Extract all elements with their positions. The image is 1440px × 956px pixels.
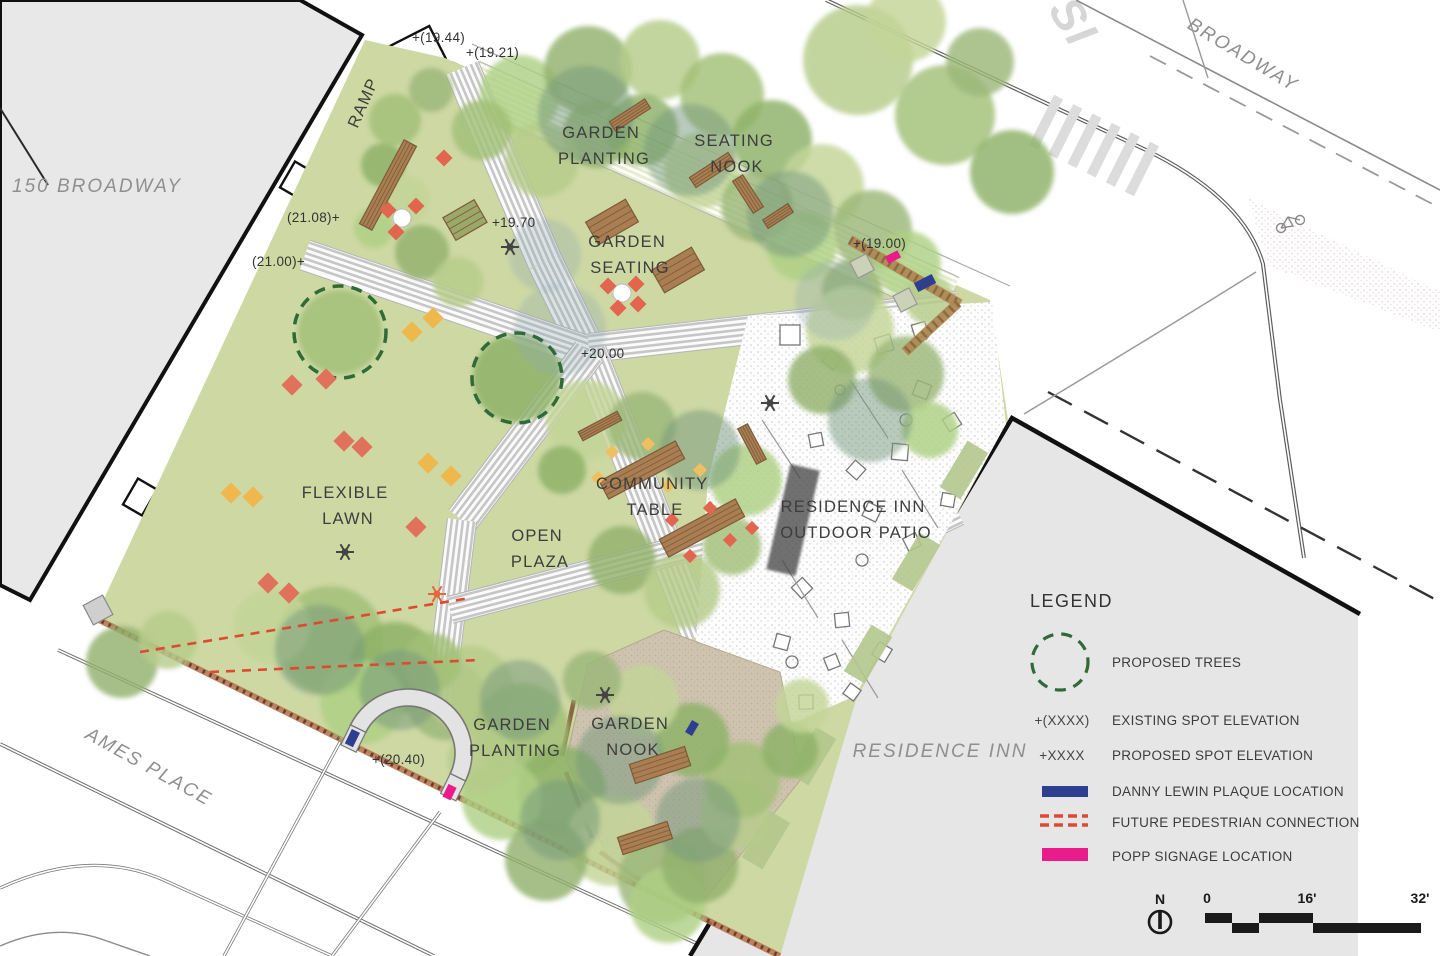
label-outdoor-patio: RESIDENCE INN [781, 498, 926, 516]
tree-blob [775, 679, 829, 733]
legend-plaque-label: DANNY LEWIN PLAQUE LOCATION [1112, 784, 1344, 799]
tree-blob [644, 552, 720, 628]
scale-end: 32' [1411, 890, 1430, 906]
label-garden-seating: GARDEN [588, 233, 666, 251]
tree-blob [452, 100, 512, 160]
label-community-table: COMMUNITY [596, 475, 708, 493]
legend-plaque-icon [1042, 786, 1088, 797]
street-centerline [224, 742, 340, 956]
elev-19-00: +(19.00) [853, 236, 906, 251]
tree-blob [970, 130, 1054, 214]
label-seating-nook: SEATING [694, 132, 774, 150]
site-plan: SI [0, 0, 1440, 956]
elev-20-40: +(20.40) [372, 752, 425, 767]
label-garden-planting-bottom: GARDEN [473, 716, 551, 734]
tree-blob [139, 611, 197, 669]
tree-blob [433, 257, 483, 307]
legend-proposed-symbol: +XXXX [1039, 748, 1084, 763]
broadway-north-curb [1076, 0, 1440, 190]
patio-table-sketch [834, 612, 849, 627]
label-garden-planting-top: GARDEN [562, 124, 640, 142]
crosswalk-bar [1091, 125, 1116, 175]
street-centerline [0, 744, 434, 956]
patio-table-sketch [773, 633, 790, 650]
ames-inner-curve [0, 932, 150, 956]
legend-signage-label: POPP SIGNAGE LOCATION [1112, 849, 1293, 864]
elev-19-21: +(19.21) [466, 45, 519, 60]
patio-table-sketch [808, 432, 823, 447]
street-sign-partial: SI [1039, 0, 1108, 55]
tree-blob [538, 446, 586, 494]
crosswalk-bar [1129, 144, 1154, 194]
label-garden-nook: GARDEN [591, 715, 669, 733]
north-label: N [1155, 891, 1165, 907]
tree-blob [946, 28, 1014, 96]
legend-title: LEGEND [1030, 591, 1113, 611]
tree-blob-dark [520, 780, 600, 860]
ames-corner-curve [0, 865, 332, 956]
legend-signage-icon [1042, 848, 1088, 861]
label-150-broadway: 150 BROADWAY [12, 176, 182, 197]
elev-21-00: (21.00)+ [252, 254, 305, 269]
elev-19-44: +(19.44) [412, 30, 465, 45]
tree-blob-dark [538, 66, 634, 162]
crosswalk-bar [1110, 135, 1135, 185]
tree-blob-dark [828, 378, 912, 462]
legend-existing-label: EXISTING SPOT ELEVATION [1112, 713, 1300, 728]
label-flexible-lawn: FLEXIBLE [302, 484, 389, 502]
elev-19-70: +19.70 [492, 215, 535, 230]
bike-lane-stipple [1248, 198, 1440, 332]
legend-existing-symbol: +(XXXX) [1035, 713, 1090, 728]
legend-proposed-label: PROPOSED SPOT ELEVATION [1112, 748, 1313, 763]
tree-blob [409, 68, 453, 112]
label-open-plaza: OPEN [511, 527, 563, 545]
driveway-curb [1024, 272, 1256, 414]
tree-blob-dark [644, 104, 736, 196]
legend-pedestrian-label: FUTURE PEDESTRIAN CONNECTION [1112, 815, 1360, 830]
label-ames-place: AMES PLACE [81, 723, 216, 810]
elev-20-00: +20.00 [581, 346, 624, 361]
label-residence-inn: RESIDENCE INN [853, 741, 1028, 762]
patio-table-sketch [780, 325, 800, 345]
legend-proposed-trees-label: PROPOSED TREES [1112, 655, 1241, 670]
elev-21-08: (21.08)+ [287, 210, 340, 225]
scale-mid: 16' [1298, 890, 1317, 906]
tree-blob [563, 651, 621, 709]
tree-blob [298, 290, 382, 374]
label-broadway: BROADWAY [1184, 14, 1302, 96]
street-centerline [0, 865, 332, 956]
tree-blob-dark [656, 778, 740, 862]
scale-zero: 0 [1203, 890, 1211, 906]
